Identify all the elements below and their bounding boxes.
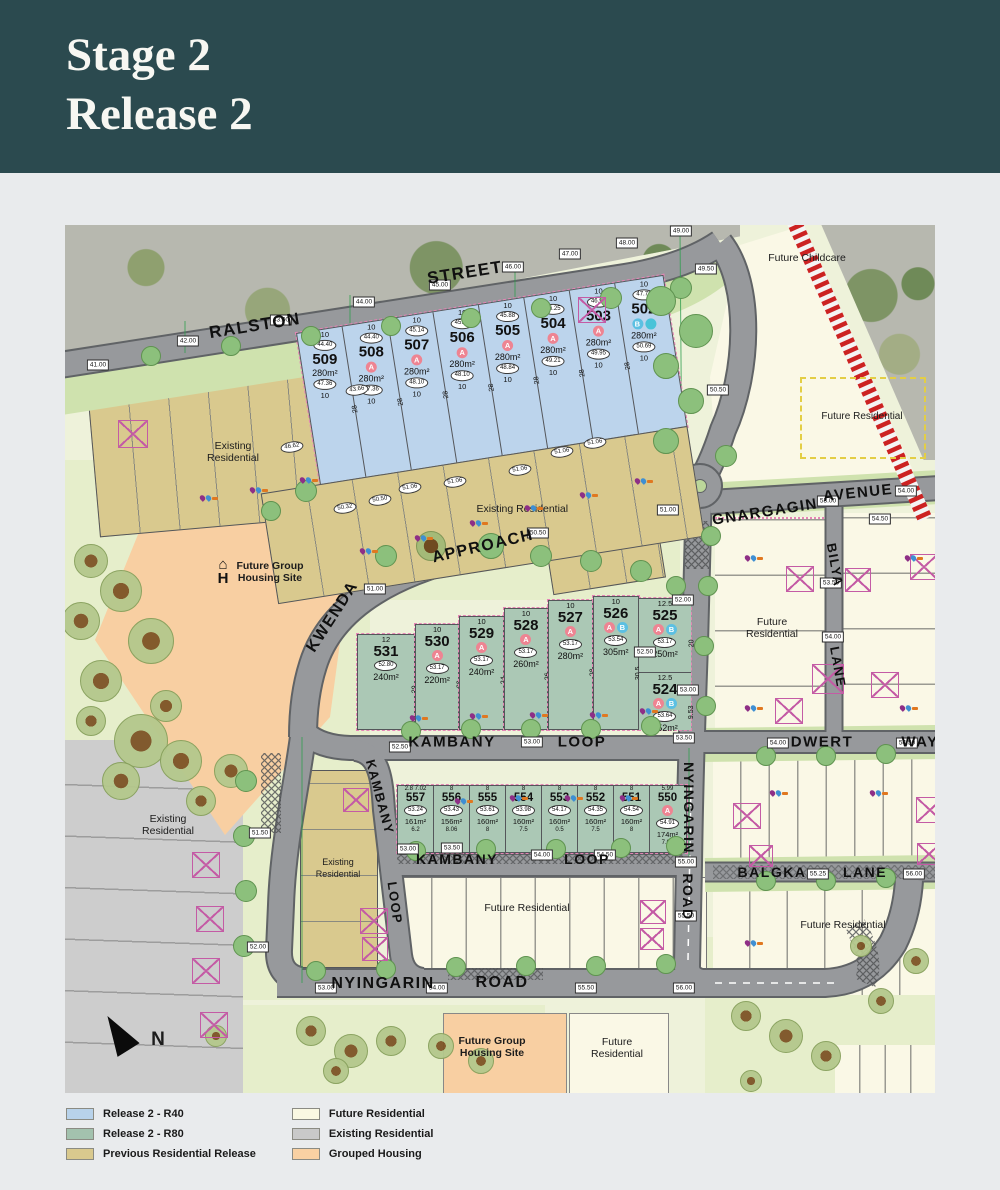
legend-swatch [292,1148,320,1160]
lot-area: 152m² [652,723,678,733]
lot-depth: 28 [670,354,678,363]
dwert-balgka-block [713,753,935,865]
lot-number: 504 [541,316,566,332]
lot-rear-level: 49.21 [542,356,565,367]
legend-item: Future Residential [292,1104,434,1124]
elevation-marker: 53.50 [673,733,695,744]
lot-badges: AB [653,698,677,709]
lot-531: 1253152.80240m²20 [357,634,415,730]
legend-label: Release 2 - R40 [103,1108,184,1120]
lot-number: 557 [406,793,425,804]
lot-number: 531 [373,644,398,659]
lot-number: 524 [652,682,677,697]
lot-area: 280m² [312,368,338,378]
badge-a: A [457,347,468,358]
north-label: N [151,1034,165,1046]
lot-rear-level: 48.10 [451,370,474,381]
lot-526: 10526AB53.54305m²30.5 [593,596,639,730]
lot-rear-width: 7.5 [591,827,599,834]
lot-badges: AB [653,624,677,635]
lot-area: 280m² [404,366,430,376]
lot-content: 1044.40508A280m²47.3610 [349,323,394,406]
lot-level: 54.54 [620,805,643,816]
lot-rear-width: 10 [594,361,602,370]
lot-number: 529 [469,626,494,641]
lot-badges: A [432,650,443,661]
elevation-marker: 56.00 [673,983,695,994]
street-nyingarin-h-road: ROAD [475,974,528,992]
release2-r80-upper-row: 1253152.80240m²2010530A53.17220m²2210529… [357,598,691,730]
tree-icon [679,314,713,348]
badge-a: A [662,805,673,816]
badge-a: A [548,333,559,344]
lot-level: 53.24 [404,805,427,816]
lot-content: 1046.25504A280m²49.2110 [531,294,576,377]
future-residential-label-ne: Future Residential [807,411,917,423]
future-childcare-label: Future Childcare [767,252,847,264]
legend-label: Existing Residential [329,1128,434,1140]
lot-rear-width: 10 [321,391,329,400]
elevation-marker: 55.50 [575,983,597,994]
existing-residential-label-left: Existing Residential [188,440,278,464]
lot-level: 53.43 [440,805,463,816]
lot-number: 552 [586,793,605,804]
tree-icon [696,696,716,716]
lot-number: 526 [603,606,628,621]
street-dwert-way: WAY [901,734,935,751]
lot-stack: 12.5525AB53.17250m²2012.5524AB53.64152m²… [639,598,691,730]
lot-badges: A [476,642,487,653]
lot-number: 506 [450,330,475,346]
lot-number: 525 [652,608,677,623]
lot-area: 174m² [657,830,678,840]
lot-rear-level: 47.36 [313,379,336,390]
future-residential-label-south: Future Residential [577,1036,657,1060]
lot-area: 156m² [441,817,462,827]
street-kambany-upper: KAMBANY [408,734,495,751]
lot-front-width: 10 [413,315,421,324]
lot-area: 260m² [513,659,539,669]
lot-area: 160m² [621,817,642,827]
elevation-marker: 55.00 [675,857,697,868]
existing-residential-label-mid: Existing Residential [476,503,568,515]
badge-a: A [476,642,487,653]
lot-badges: A [520,634,531,645]
header-banner: Stage 2Release 2 [0,0,1000,173]
legend-swatch [292,1108,320,1120]
lot-area: 250m² [652,649,678,659]
legend-swatch [292,1128,320,1140]
existing-residential-label-kambany: Existing Residential [303,856,373,880]
lot-front-level: 44.40 [313,340,336,351]
house-icon: ⌂H [218,558,229,586]
lot-area: 280m² [540,345,566,355]
future-residential-balgka-south-block [713,883,935,995]
lot-rear-width: 10 [503,375,511,384]
lot-rear-width: 0.5 [555,827,563,834]
lot-level: 54.17 [548,805,571,816]
lot-level: 53.64 [653,711,676,722]
future-residential-kambany-south-block [397,877,707,973]
lot-badges: A [411,354,422,365]
lot-556: 855653.43156m²8.06 [434,786,470,852]
legend-label: Release 2 - R80 [103,1128,184,1140]
lot-number: 555 [478,793,497,804]
lot-level: 54.35 [584,805,607,816]
lot-level: 53.54 [604,635,627,646]
lot-rear-width: 6.2 [411,827,419,834]
lot-level: 53.17 [426,663,449,674]
lot-area: 160m² [513,817,534,827]
lot-content: 1044.40509280m²47.3610 [302,330,347,400]
lot-badges: A [366,362,377,373]
lot-rear-level: 48.10 [405,377,428,388]
legend-label: Previous Residential Release [103,1148,256,1160]
lot-rear-width: 10 [458,382,466,391]
future-residential-label-bilya: Future Residential [732,616,812,640]
street-kambany-lower: KAMBANY [416,851,498,867]
badge-b: B [666,698,677,709]
street-nyingarin-v: NYINGARIN [681,762,697,854]
legend-label: Grouped Housing [329,1148,422,1160]
lot-557: 2.8 7.0255753.24161m²6.2 [398,786,434,852]
lot-content: 1045.88505A280m²48.8410 [485,301,530,384]
lot-level: 53.17 [559,639,582,650]
lot-rear-width: 10 [413,389,421,398]
future-residential-label-balgka: Future Residential [798,919,888,931]
lot-level: 53.61 [476,805,499,816]
street-nyingarin-v-road: ROAD [680,873,696,920]
future-residential-label-kambany-south: Future Residential [482,902,572,914]
lot-number: 505 [495,323,520,339]
future-group-housing-label-south: Future Group Housing Site [449,1035,535,1059]
lot-number: 553 [550,793,569,804]
lot-rear-width: 8 [630,827,633,834]
street-balgka-lane: LANE [843,864,887,880]
lot-front-width: 10 [594,287,602,296]
lot-rear-level: 49.95 [587,349,610,360]
badge-b: B [632,318,643,329]
lot-front-level: 46.25 [542,304,565,315]
badge-a: A [653,698,664,709]
lot-area: 280m² [449,359,475,369]
lot-level: 53.17 [470,655,493,666]
legend-item: Release 2 - R80 [66,1124,256,1144]
lot-front-level: 47.72 [632,289,655,300]
lot-area: 220m² [424,675,450,685]
lot-front-level: 44.40 [360,333,383,344]
lot-number: 550 [658,793,677,804]
lot-badges: A [593,326,604,337]
lot-area: 280m² [558,651,584,661]
lot-area: 160m² [477,817,498,827]
lot-content: 1045.14507A280m²48.1010 [394,315,439,398]
lot-number: 503 [586,309,611,325]
lot-badges: AB [604,622,628,633]
lot-528: 10528A53.17260m²26 [504,608,548,730]
lot-number: 551 [622,793,641,804]
badge-a: A [411,354,422,365]
lot-level: 54.91 [656,818,679,829]
badge-b: B [617,622,628,633]
lot-badges: B [632,318,656,329]
legend-item: Grouped Housing [292,1144,434,1164]
lot-number: 502 [631,301,656,317]
release2-r80-lower-row: 2.8 7.0255753.24161m²6.2855653.43156m²8.… [397,785,687,853]
lot-front-level: 45.88 [496,311,519,322]
tree-icon [670,277,692,299]
lot-level: 53.17 [653,637,676,648]
lot-badges: A [662,805,673,816]
lot-content: 1046.99503A280m²49.9510 [576,287,621,370]
lot-front-width: 10 [503,301,511,310]
lot-number: 528 [513,618,538,633]
street-kambany-lower-loop: LOOP [564,851,610,867]
legend-label: Future Residential [329,1108,425,1120]
badge-a: A [366,362,377,373]
lot-551: 855154.54160m²8 [614,786,650,852]
legend-item: Release 2 - R40 [66,1104,256,1124]
lot-area: 160m² [585,817,606,827]
lot-badges: A [457,347,468,358]
lot-553: 855354.17160m²0.5 [542,786,578,852]
title-line-1: Stage 2 [66,29,211,81]
elevation-marker: 56.00 [903,869,925,880]
legend: Release 2 - R40Release 2 - R80Previous R… [66,1104,433,1164]
street-kambany-upper-loop: LOOP [558,734,607,751]
elevation-marker: 55.25 [807,869,829,880]
lot-depth: 9.53 [689,705,696,719]
lot-rear-width: 7.5 [519,827,527,834]
lot-555: 855553.61160m²8 [470,786,506,852]
lot-rear-width: 7.02 [662,840,674,847]
street-balgka: BALGKA [738,864,807,880]
future-residential-bilya-east-block [843,513,935,739]
lot-area: 280m² [495,352,521,362]
lot-number: 507 [404,337,429,353]
lot-content: 1047.72502B280m²50.6910 [621,279,666,362]
lot-rear-width: 10 [640,353,648,362]
legend-swatch [66,1148,94,1160]
lot-554: 855453.98160m²7.5 [506,786,542,852]
legend-swatch [66,1128,94,1140]
elevation-marker: 49.50 [695,264,717,275]
lot-content: 1045.14506A280m²48.1010 [440,308,485,391]
elevation-marker: 53.00 [521,737,543,748]
lot-front-width: 10 [321,330,329,339]
future-group-housing-label-west: Future Group Housing Site [227,560,313,584]
badge-a: A [593,326,604,337]
lot-number: 509 [312,352,337,368]
lot-front-width: 10 [367,323,375,332]
page-title: Stage 2Release 2 [66,26,253,144]
tree-icon [694,636,714,656]
lot-front-width: 10 [549,294,557,303]
lot-524: 12.5524AB53.64152m²9.53 [639,672,691,730]
lot-area: 305m² [603,647,629,657]
lot-level: 52.80 [374,660,397,671]
lot-550: 5.99550A54.91174m²7.02 [650,786,685,852]
lot-area: 240m² [469,667,495,677]
badge-a: A [653,624,664,635]
lot-badges: A [548,333,559,344]
lot-front-level: 46.99 [587,297,610,308]
lot-527: 10527A53.17280m²28 [548,600,592,730]
lot-badges: A [502,340,513,351]
lot-area: 160m² [549,817,570,827]
lot-number: 530 [425,634,450,649]
lot-depth: 20 [689,639,696,647]
lot-number: 508 [359,345,384,361]
lot-number: 556 [442,793,461,804]
lot-525: 12.5525AB53.17250m²20 [639,598,691,672]
badge-b: B [666,624,677,635]
street-nyingarin-h: NYINGARIN [331,975,434,993]
lot-552: 855254.35160m²7.5 [578,786,614,852]
lot-rear-level: 48.84 [496,363,519,374]
lot-number: 527 [558,610,583,625]
lot-area: 240m² [373,672,399,682]
badge-a: A [565,626,576,637]
existing-residential-label-west: Existing Residential [123,813,213,837]
lot-rear-width: 8 [486,827,489,834]
lot-badges: A [565,626,576,637]
lot-rear-level: 50.69 [632,341,655,352]
subdivision-map: 1044.40509280m²47.3610281044.40508A280m²… [65,225,935,1093]
lot-rear-level: 47.36 [360,385,383,396]
lot-front-level: 45.14 [451,318,474,329]
street-dwert: DWERT [791,734,854,751]
badge-a: A [604,622,615,633]
elevation-marker: 54.00 [895,486,917,497]
lot-530: 10530A53.17220m²22 [415,624,459,730]
lot-rear-width: 10 [549,368,557,377]
legend-swatch [66,1108,94,1120]
lot-rear-width: 10 [367,397,375,406]
lot-area: 280m² [586,338,612,348]
lot-front-width: 10 [640,279,648,288]
badge-a: A [502,340,513,351]
badge-a: A [432,650,443,661]
lot-front-level: 45.14 [405,325,428,336]
lot-rear-width: 8.06 [446,827,458,834]
legend-item: Existing Residential [292,1124,434,1144]
title-line-2: Release 2 [66,88,253,140]
lot-area: 280m² [631,330,657,340]
legend-item: Previous Residential Release [66,1144,256,1164]
lot-level: 53.98 [512,805,535,816]
lot-number: 554 [514,793,533,804]
lot-area: 161m² [405,817,426,827]
lot-area: 280m² [359,374,385,384]
lot-529: 10529A53.17240m²24 [459,616,503,730]
future-residential-corner-block [835,1045,935,1093]
lot-front-width: 10 [458,308,466,317]
lot-level: 53.17 [514,647,537,658]
badge-a: A [520,634,531,645]
badge-c [645,318,656,329]
